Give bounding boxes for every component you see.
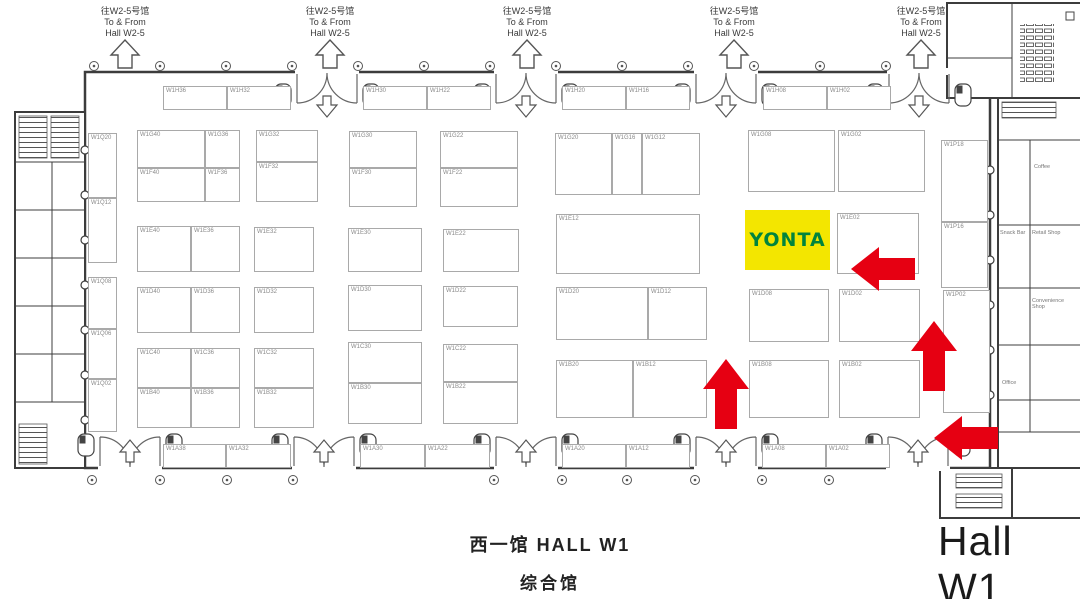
booth-W1H30: W1H30 — [363, 86, 427, 110]
booth-W1B30: W1B30 — [348, 383, 422, 424]
booth-W1Q20: W1Q20 — [88, 133, 117, 198]
booth-W1B32: W1B32 — [254, 388, 314, 428]
booth-W1D22: W1D22 — [443, 286, 518, 327]
booth-W1A12: W1A12 — [626, 444, 690, 468]
booth-W1D30: W1D30 — [348, 285, 422, 331]
booth-W1E02: W1E02 — [837, 213, 919, 274]
booth-W1D40: W1D40 — [137, 287, 191, 333]
booth-W1Q12: W1Q12 — [88, 198, 117, 263]
booth-W1G08: W1G08 — [748, 130, 835, 192]
booth-W1B40: W1B40 — [137, 388, 191, 428]
booth-W1Q06: W1Q06 — [88, 329, 117, 379]
exit-sign-5: 往W2-5号馆 To & From Hall W2-5 — [866, 6, 976, 39]
booth-W1D20: W1D20 — [556, 287, 648, 340]
room-label: Retail Shop — [1032, 230, 1078, 236]
hall-title-cn: 西一馆 HALL W1 — [350, 531, 750, 557]
booth-W1G20: W1G20 — [555, 133, 612, 195]
booth-W1B22: W1B22 — [443, 382, 518, 424]
booth-W1A20: W1A20 — [562, 444, 626, 468]
booth-W1D32: W1D32 — [254, 287, 314, 333]
hall-title-en: Hall W1 — [938, 518, 1080, 599]
booth-W1C32: W1C32 — [254, 348, 314, 388]
booth-W1B02: W1B02 — [839, 360, 920, 418]
booth-W1P16: W1P16 — [941, 222, 988, 288]
exit-sign-2: 往W2-5号馆 To & From Hall W2-5 — [275, 6, 385, 39]
booth-W1E40: W1E40 — [137, 226, 191, 272]
booth-W1H36: W1H36 — [163, 86, 227, 110]
booth-W1E12: W1E12 — [556, 214, 700, 274]
booth-W1G40: W1G40 — [137, 130, 205, 168]
booth-W1F22: W1F22 — [440, 168, 518, 207]
booth-W1P02: W1P02 — [943, 290, 990, 413]
booth-W1F40: W1F40 — [137, 168, 205, 202]
booth-W1G12: W1G12 — [642, 133, 700, 195]
booth-W1F36: W1F36 — [205, 168, 240, 202]
booth-W1G22: W1G22 — [440, 131, 518, 168]
floorplan-page: W1H36W1H32W1H30W1H22W1H20W1H16W1H08W1H02… — [0, 0, 1080, 599]
booth-W1G30: W1G30 — [349, 131, 417, 168]
exit-sign-4: 往W2-5号馆 To & From Hall W2-5 — [679, 6, 789, 39]
booth-W1A32: W1A32 — [226, 444, 291, 468]
booth-W1G16: W1G16 — [612, 133, 642, 195]
booth-W1B36: W1B36 — [191, 388, 240, 428]
booth-W1B08: W1B08 — [749, 360, 829, 418]
booth-W1C22: W1C22 — [443, 344, 518, 382]
booth-W1Q02: W1Q02 — [88, 379, 117, 432]
booth-W1E32: W1E32 — [254, 227, 314, 272]
booth-W1A38: W1A38 — [163, 444, 226, 468]
booth-W1H22: W1H22 — [427, 86, 491, 110]
booth-W1H20: W1H20 — [562, 86, 626, 110]
exit-sign-1: 往W2-5号馆 To & From Hall W2-5 — [70, 6, 180, 39]
booth-W1C36: W1C36 — [191, 348, 240, 388]
booth-W1B12: W1B12 — [633, 360, 707, 418]
booth-W1D02: W1D02 — [839, 289, 920, 342]
booth-W1E22: W1E22 — [443, 229, 519, 272]
booth-W1H02: W1H02 — [827, 86, 891, 110]
booth-W1E36: W1E36 — [191, 226, 240, 272]
room-label: Coffee — [1034, 164, 1080, 170]
booth-W1H32: W1H32 — [227, 86, 291, 110]
booth-W1D08: W1D08 — [749, 289, 829, 342]
booth-W1P18: W1P18 — [941, 140, 988, 222]
booth-W1Q08: W1Q08 — [88, 277, 117, 329]
booth-W1A08: W1A08 — [762, 444, 826, 468]
room-label: Convenience Shop — [1032, 298, 1078, 310]
booth-W1G32: W1G32 — [256, 130, 318, 162]
exit-sign-3: 往W2-5号馆 To & From Hall W2-5 — [472, 6, 582, 39]
booth-W1A30: W1A30 — [360, 444, 425, 468]
booth-W1D36: W1D36 — [191, 287, 240, 333]
booth-W1G36: W1G36 — [205, 130, 240, 168]
booth-W1F30: W1F30 — [349, 168, 417, 207]
room-label: Office — [1002, 380, 1048, 386]
booth-W1H08: W1H08 — [763, 86, 827, 110]
booth-W1G02: W1G02 — [838, 130, 925, 192]
hall-subtitle-cn: 综合馆 — [350, 569, 750, 594]
booth-W1F32: W1F32 — [256, 162, 318, 202]
booth-W1E30: W1E30 — [348, 228, 422, 272]
booth-W1A02: W1A02 — [826, 444, 890, 468]
booth-W1D12: W1D12 — [648, 287, 707, 340]
booth-W1B20: W1B20 — [556, 360, 633, 418]
booth-W1A22: W1A22 — [425, 444, 490, 468]
booth-layer: W1H36W1H32W1H30W1H22W1H20W1H16W1H08W1H02… — [0, 0, 1080, 599]
yonta-booth-highlight: YONTA — [745, 210, 830, 270]
booth-W1C40: W1C40 — [137, 348, 191, 388]
booth-W1C30: W1C30 — [348, 342, 422, 383]
yonta-logo: YONTA — [749, 229, 825, 251]
booth-W1H16: W1H16 — [626, 86, 690, 110]
